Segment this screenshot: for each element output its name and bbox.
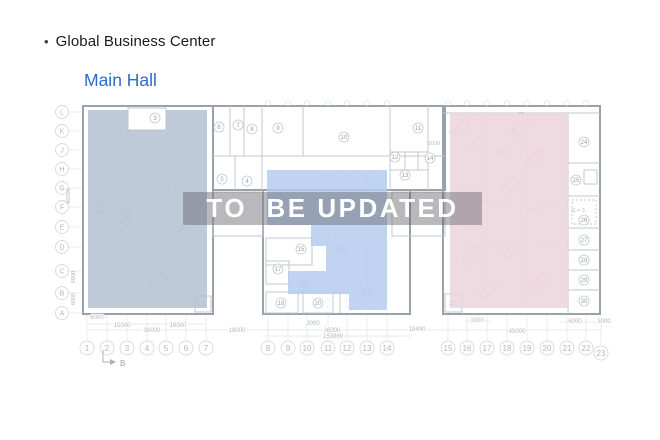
column-grid-label: 15 [444,344,453,353]
dimension-label: 153869 [323,334,344,340]
dimension-label-vertical: 6000 [71,293,77,305]
section-marker-label: B [120,359,125,368]
room-number: 30 [581,299,588,305]
row-grid-label: B [60,291,65,298]
row-grid-label: K [60,129,65,136]
row-grid-label: F [60,205,64,212]
row-grid-label: D [59,245,64,252]
column-grid-label: 9 [286,344,291,353]
column-grid-label: 21 [563,344,572,353]
top-grid-bubble [305,101,310,106]
column-grid-label: 1 [85,344,90,353]
room-number: 29 [581,278,588,284]
row-grid-label: H [59,167,64,174]
dimension-label: 6000 [568,319,582,325]
watermark-band: TO BE UPDATED [183,192,482,225]
row-grid-label: L [60,110,64,117]
top-grid-bubble [266,101,271,106]
room-number: 26 [581,218,588,224]
row-grid-bubbles: LKJHGFEDCBA [56,106,83,320]
dimension-label: 6000 [90,315,104,321]
top-grid-bubble [545,101,550,106]
column-grid-label: 2 [105,344,110,353]
room-number: 24 [581,140,588,146]
column-grid-label: 20 [543,344,552,353]
column-grid-label: 17 [483,344,492,353]
watermark-text: TO BE UPDATED [206,192,458,225]
row-grid-label: G [59,186,64,193]
room-number: 20 [315,301,322,307]
row-grid-label: A [60,311,65,318]
dimension-label: 15000 [114,323,131,329]
top-grid-bubbles [266,101,589,106]
main-hall-page: • Global Business Center Main Hall [0,0,660,440]
room-number: 18 [278,301,285,307]
top-grid-bubble [465,101,470,106]
column-grid-label: 4 [145,344,150,353]
dimension-label: 36000 [144,328,161,334]
plan-annotation: Q = 3 [571,208,585,214]
column-grid-label: 3 [125,344,130,353]
column-grid-label: 22 [582,344,591,353]
top-grid-bubble [485,101,490,106]
room-number: 25 [573,178,580,184]
column-grid-label: 8 [266,344,271,353]
column-grid-label: 12 [343,344,352,353]
row-grid-label: E [60,225,65,232]
column-grid-label: 10 [303,344,312,353]
dimension-label: 18000 [229,328,246,334]
column-grid-label: 14 [383,344,392,353]
column-grid-bubbles: 1234567891011121314151617181920212223 [80,315,608,360]
room-number: 17 [275,267,282,273]
zone-center-highlight[interactable] [267,170,387,310]
dimension-label: 2000 [306,321,320,327]
top-grid-bubble [385,101,390,106]
row-grid-label: J [60,148,64,155]
top-grid-bubble [446,101,451,106]
row-grid-label: C [59,269,64,276]
top-grid-bubble [505,101,510,106]
room-number: 13 [402,173,409,179]
room-number: 28 [581,258,588,264]
room-number: 14 [427,156,434,162]
dimension-lines [88,317,605,336]
room-number: 11 [415,126,422,132]
column-grid-label: 13 [363,344,372,353]
room-number: 27 [581,238,588,244]
column-grid-label: 18 [503,344,512,353]
column-grid-label: 23 [597,349,606,358]
column-grid-label: 6 [184,344,189,353]
column-grid-label: 11 [324,344,333,353]
dimension-label: 1000 [470,318,484,324]
top-grid-bubble [525,101,530,106]
dimension-label: 18000 [170,323,187,329]
top-grid-bubble [345,101,350,106]
column-grid-label: 16 [463,344,472,353]
room-number: 15 [298,247,305,253]
room-number: 10 [341,135,348,141]
dimension-label: 45000 [509,329,526,335]
top-grid-bubble [365,101,370,106]
dimension-label-vertical: 60000 [66,188,72,203]
dimension-label: 3000 [597,319,611,325]
top-grid-bubble [584,101,589,106]
column-grid-label: 5 [164,344,169,353]
plan-annotation: 1000 [428,141,440,147]
column-grid-label: 7 [204,344,209,353]
dimension-label-vertical: 6000 [71,271,77,283]
column-grid-label: 19 [523,344,532,353]
room-number: 12 [392,155,399,161]
dimension-label: 18400 [409,327,426,333]
top-grid-bubble [326,101,331,106]
top-grid-bubble [565,101,570,106]
top-grid-bubble [286,101,291,106]
